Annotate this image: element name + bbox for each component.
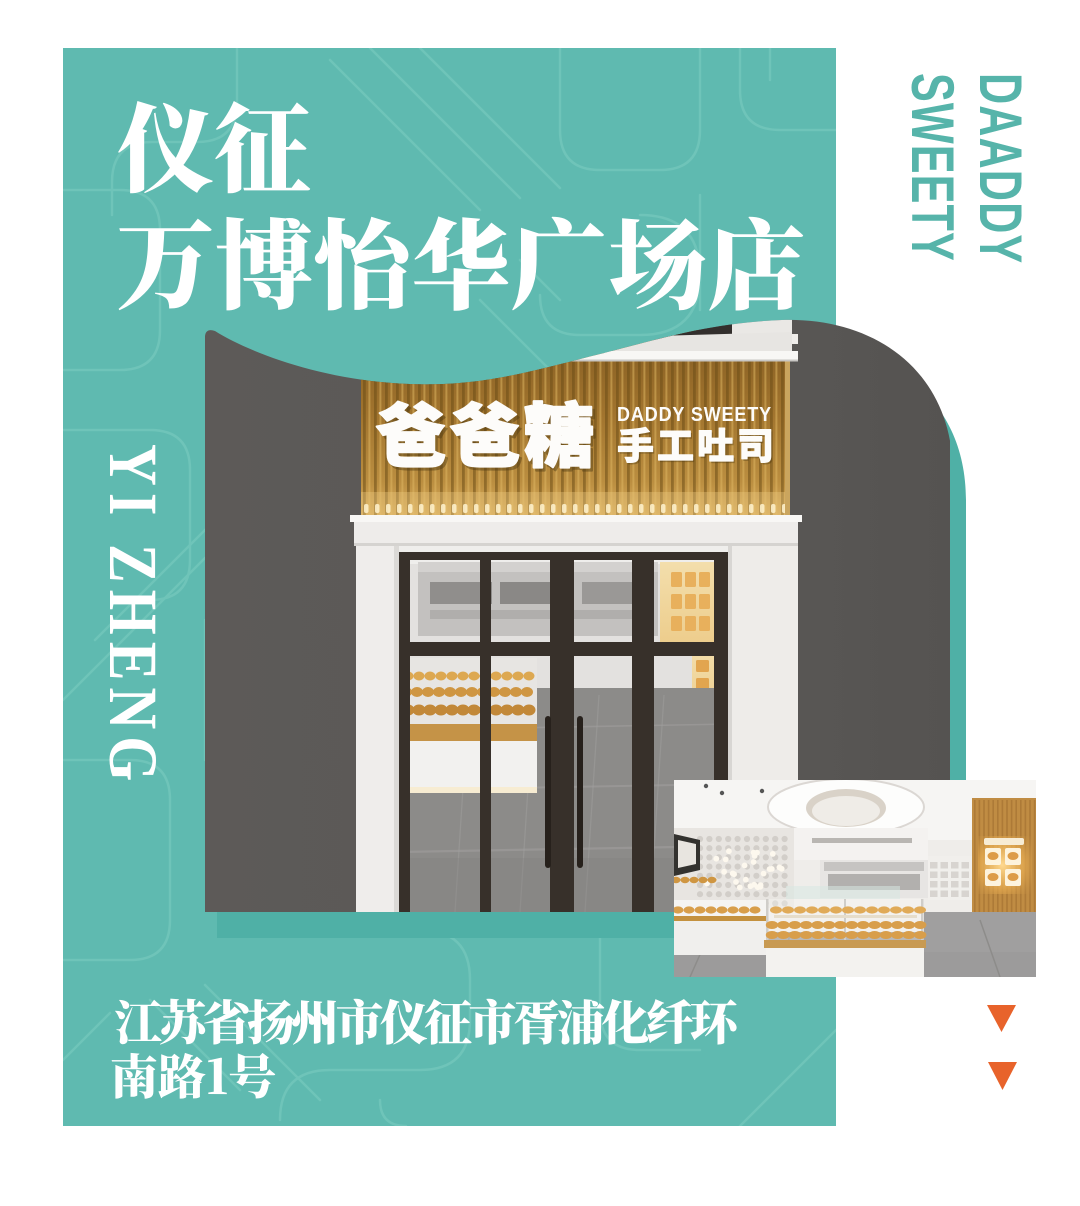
svg-text:YI ZHENG: YI ZHENG — [95, 444, 172, 788]
svg-text:DAADDY: DAADDY — [966, 73, 1033, 264]
svg-text:SWEETY: SWEETY — [898, 73, 965, 262]
svg-text:DADDY SWEETY: DADDY SWEETY — [617, 403, 772, 426]
